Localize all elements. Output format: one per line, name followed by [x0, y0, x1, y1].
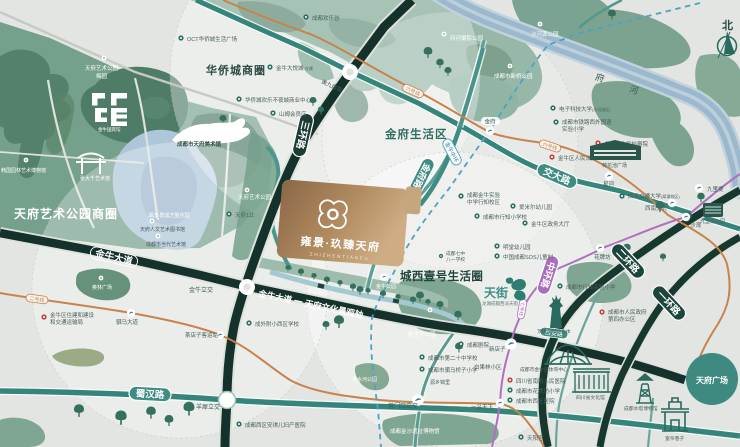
- svg-text:天街: 天街: [484, 285, 508, 300]
- svg-text:府河摄影公园: 府河摄影公园: [450, 34, 484, 42]
- svg-text:成都市花牌坊小学: 成都市花牌坊小学: [516, 387, 561, 395]
- svg-text:羊犀立交: 羊犀立交: [196, 403, 220, 411]
- svg-text:韩国园林艺术博物馆: 韩国园林艺术博物馆: [1, 167, 46, 174]
- svg-text:天府111: 天府111: [235, 211, 254, 219]
- svg-text:华侨城欢乐不夜城商业中心: 华侨城欢乐不夜城商业中心: [245, 96, 312, 104]
- svg-text:成外附小西区学校: 成外附小西区学校: [255, 320, 300, 328]
- svg-text:九里堤公园: 九里堤公园: [700, 218, 725, 225]
- svg-text:成都市当代艺术馆: 成都市当代艺术馆: [146, 241, 186, 248]
- svg-text:成都市新桥公园: 成都市新桥公园: [494, 72, 533, 80]
- svg-text:成都市西区医院: 成都市西区医院: [516, 397, 555, 405]
- svg-text:一品天下: 一品天下: [471, 404, 494, 411]
- svg-text:金府: 金府: [484, 118, 496, 126]
- svg-text:营门口立交: 营门口立交: [388, 402, 418, 410]
- svg-text:中国成都SOS儿童村: 中国成都SOS儿童村: [503, 253, 554, 261]
- svg-text:奥林广场: 奥林广场: [92, 284, 112, 291]
- svg-text:新金牛公园: 新金牛公园: [408, 330, 436, 338]
- svg-text:蜀汉路: 蜀汉路: [135, 388, 165, 402]
- svg-text:成都市第二十中学校: 成都市第二十中学校: [428, 354, 478, 362]
- svg-text:第四办公区: 第四办公区: [608, 315, 636, 323]
- svg-text:成都市行知实验小学: 成都市行知实验小学: [566, 283, 616, 291]
- svg-text:新店子: 新店子: [489, 345, 506, 353]
- svg-text:星河: 星河: [603, 180, 615, 188]
- svg-text:成都市驷马桥子小学: 成都市驷马桥子小学: [428, 366, 478, 374]
- svg-text:天府艺术公园: 天府艺术公园: [85, 64, 119, 72]
- svg-text:天府广场: 天府广场: [696, 375, 728, 385]
- svg-text:成都七中: 成都七中: [446, 250, 465, 257]
- svg-text:金牛区住建和建设: 金牛区住建和建设: [50, 311, 95, 319]
- svg-text:天府艺术公园商圈: 天府艺术公园商圈: [14, 206, 118, 221]
- svg-text:天阳宫: 天阳宫: [527, 434, 544, 442]
- svg-text:成都市人民政府: 成都市人民政府: [608, 308, 647, 316]
- svg-text:金牛国宾馆: 金牛国宾馆: [98, 126, 121, 133]
- svg-text:成都水塔博物馆: 成都水塔博物馆: [624, 405, 658, 412]
- svg-text:梅园: 梅园: [96, 72, 108, 80]
- svg-text:成都市天府美术馆: 成都市天府美术馆: [177, 140, 222, 148]
- svg-text:成都市金牛区体育中心: 成都市金牛区体育中心: [520, 366, 568, 373]
- svg-text:清水河公园: 清水河公园: [352, 376, 377, 383]
- svg-text:源乡锦里: 源乡锦里: [430, 379, 450, 386]
- svg-text:八一学校: 八一学校: [446, 256, 465, 263]
- svg-text:成都金牛实验: 成都金牛实验: [467, 191, 501, 199]
- svg-text:和交通运输局: 和交通运输局: [50, 318, 83, 326]
- svg-text:西南交大: 西南交大: [645, 204, 668, 212]
- svg-text:九里堤: 九里堤: [707, 185, 724, 193]
- svg-text:山姆会员店: 山姆会员店: [279, 110, 307, 118]
- svg-text:龙湖成都西派天街: 龙湖成都西派天街: [482, 300, 518, 307]
- svg-text:成都剧院: 成都剧院: [467, 341, 490, 349]
- svg-text:顶峰水岸综合体: 顶峰水岸综合体: [537, 328, 571, 335]
- svg-text:北: 北: [722, 18, 733, 32]
- svg-text:电子科技大学(沙河校区): 电子科技大学(沙河校区): [559, 105, 611, 113]
- svg-text:华侨城商圈: 华侨城商圈: [206, 63, 266, 77]
- svg-text:金牛大悦城 在建: 金牛大悦城 在建: [276, 64, 313, 72]
- svg-text:金牛区政务大厅: 金牛区政务大厅: [531, 220, 570, 228]
- svg-text:爱米尔幼儿园: 爱米尔幼儿园: [519, 203, 553, 211]
- svg-text:茶店子客运站: 茶店子客运站: [185, 331, 219, 339]
- svg-text:沙河源公园: 沙河源公园: [531, 30, 559, 38]
- svg-text:张大千艺术馆: 张大千艺术馆: [80, 175, 110, 182]
- svg-text:花牌坊: 花牌坊: [594, 253, 611, 261]
- svg-text:白果林小区: 白果林小区: [474, 363, 502, 371]
- svg-text:中学行知校区: 中学行知校区: [467, 198, 501, 206]
- svg-text:OCT华侨城生活广场: OCT华侨城生活广场: [187, 35, 238, 43]
- svg-text:湖滨·隐溪艺墅花园: 湖滨·隐溪艺墅花园: [148, 212, 190, 219]
- svg-text:天府艺术公园: 天府艺术公园: [238, 193, 272, 201]
- svg-text:明堂幼儿园: 明堂幼儿园: [503, 243, 531, 251]
- svg-text:西南交通大学(犀浦校区): 西南交通大学(犀浦校区): [628, 192, 680, 200]
- svg-text:成都市行知小学校: 成都市行知小学校: [483, 213, 528, 221]
- svg-text:四川省南阳人民医院: 四川省南阳人民医院: [516, 377, 566, 385]
- svg-text:成都欢乐谷: 成都欢乐谷: [312, 14, 340, 22]
- svg-text:成都西区安琪儿妇产医院: 成都西区安琪儿妇产医院: [245, 421, 306, 429]
- svg-text:金府生活区: 金府生活区: [384, 127, 448, 141]
- svg-text:金牛立交: 金牛立交: [189, 286, 213, 294]
- svg-text:成都市铁路西外国语: 成都市铁路西外国语: [562, 118, 612, 126]
- svg-text:驷马大道: 驷马大道: [116, 318, 139, 326]
- svg-text:成都金沙遗址博物馆: 成都金沙遗址博物馆: [390, 427, 440, 435]
- svg-text:实验小学: 实验小学: [562, 125, 585, 133]
- svg-text:天府人文艺术图书馆: 天府人文艺术图书馆: [140, 226, 185, 233]
- svg-text:金牛公园: 金牛公园: [376, 283, 396, 290]
- svg-text:荷花池广场: 荷花池广场: [602, 162, 627, 169]
- svg-text:宽窄巷子: 宽窄巷子: [665, 435, 684, 442]
- svg-text:四川省文化馆: 四川省文化馆: [576, 394, 605, 401]
- svg-text:城西壹号生活圈: 城西壹号生活圈: [400, 269, 483, 283]
